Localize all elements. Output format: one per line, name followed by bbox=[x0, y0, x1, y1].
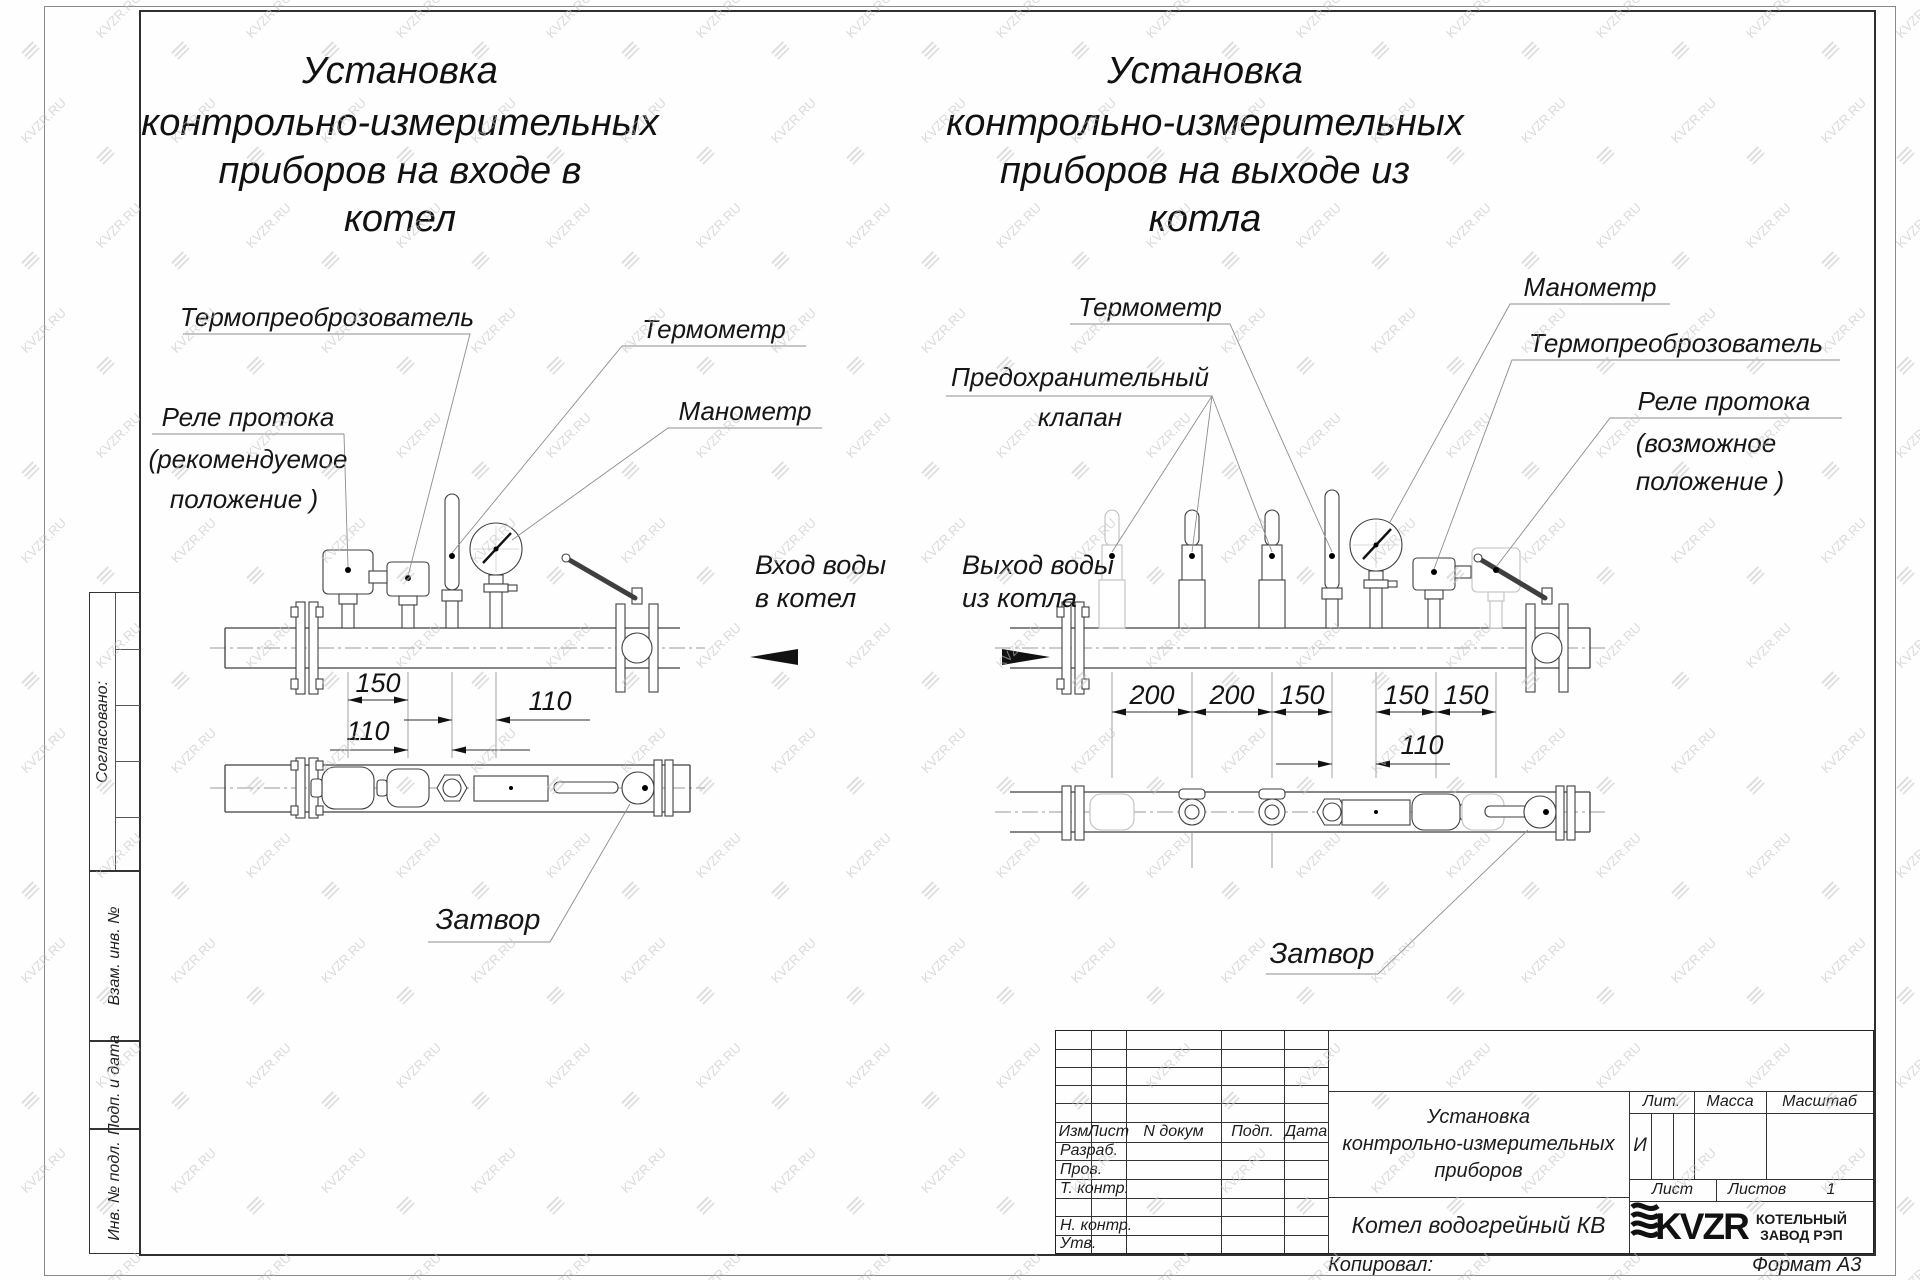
sidebar-agreed-label: Согласовано: bbox=[94, 681, 112, 783]
tb-logo-cell: KVZR КОТЕЛЬНЫЙ ЗАВОД РЭП bbox=[1629, 1201, 1873, 1253]
sidebar-podp-label: Подп. и дата bbox=[106, 1035, 124, 1135]
sidebar-agreed: Согласовано: bbox=[89, 592, 141, 872]
kvzr-logo-sub2: ЗАВОД РЭП bbox=[1756, 1227, 1847, 1243]
format-label: Формат А3 bbox=[1752, 1254, 1861, 1277]
label-water-outlet-line2: из котла bbox=[962, 583, 1077, 614]
tb-izm-header: Изм bbox=[1056, 1122, 1091, 1142]
right-flow-arrow bbox=[1002, 649, 1050, 665]
label-left-relay-line1: Реле протока bbox=[162, 402, 335, 433]
kvzr-logo-sub1: КОТЕЛЬНЫЙ bbox=[1756, 1211, 1847, 1227]
right-title-line4: котла bbox=[1149, 198, 1261, 241]
left-top-view bbox=[210, 758, 705, 818]
tb-doc-title-line3: приборов bbox=[1434, 1158, 1522, 1185]
label-right-thermometer: Термометр bbox=[1078, 292, 1222, 323]
copied-label: Копировал: bbox=[1328, 1254, 1433, 1277]
right-safety-valve-1 bbox=[1179, 510, 1205, 628]
label-left-relay-line2: (рекомендуемое bbox=[149, 444, 348, 475]
left-thermometer bbox=[442, 494, 462, 628]
dim-left-150: 150 bbox=[355, 668, 400, 698]
left-title-line3: приборов на входе в bbox=[218, 150, 581, 193]
right-top-safety-2 bbox=[1259, 789, 1285, 868]
sidebar-podp: Подп. и дата bbox=[89, 1040, 141, 1130]
dim-right-150a: 150 bbox=[1279, 680, 1324, 710]
label-left-valve: Затвор bbox=[436, 904, 541, 937]
tb-product: Котел водогрейный КВ bbox=[1328, 1197, 1629, 1253]
tb-nkontr: Н. контр. bbox=[1060, 1216, 1136, 1235]
kvzr-coil-icon bbox=[1629, 1201, 1661, 1239]
tb-scale-header: Масштаб bbox=[1766, 1091, 1873, 1113]
tb-lit-value: И bbox=[1629, 1113, 1651, 1179]
left-shutoff-valve bbox=[562, 554, 658, 692]
left-dimensions: 150 110 110 bbox=[330, 668, 590, 758]
tb-utv: Утв. bbox=[1060, 1235, 1126, 1253]
label-water-inlet-line2: в котел bbox=[755, 583, 856, 614]
drawing-sheet: 150 110 110 bbox=[0, 0, 1920, 1280]
tb-sheet-label: Лист bbox=[1629, 1179, 1716, 1201]
right-thermo-transducer bbox=[1413, 558, 1471, 628]
label-left-thermometer: Термометр bbox=[642, 314, 786, 345]
tb-razrab: Разраб. bbox=[1060, 1142, 1126, 1160]
dim-right-200a: 200 bbox=[1128, 680, 1174, 710]
tb-massa-header: Масса bbox=[1694, 1091, 1766, 1113]
right-dimensions: 200 200 150 150 150 110 bbox=[1112, 672, 1496, 778]
dim-right-150c: 150 bbox=[1443, 680, 1488, 710]
title-block: Изм Лист N докум Подп. Дата Разраб. Пров… bbox=[1055, 1030, 1874, 1254]
left-title-line2: контрольно-измерительных bbox=[141, 102, 658, 145]
tb-doc-title-line1: Установка bbox=[1427, 1104, 1530, 1131]
sidebar-inv: Инв. № подл. bbox=[89, 1128, 141, 1254]
tb-sheets-value: 1 bbox=[1816, 1179, 1846, 1201]
right-top-view bbox=[995, 786, 1605, 868]
right-top-safety-1 bbox=[1179, 789, 1205, 868]
label-right-manometer: Манометр bbox=[1524, 272, 1657, 303]
label-left-relay-line3: положение ) bbox=[170, 484, 318, 515]
sidebar-vzam-label: Взам. инв. № bbox=[106, 907, 124, 1006]
right-side-view bbox=[995, 490, 1605, 694]
tb-lit-header: Лит. bbox=[1629, 1091, 1694, 1113]
right-manometer bbox=[1350, 519, 1402, 628]
label-right-relay-line1: Реле протока bbox=[1638, 386, 1811, 417]
label-water-inlet-line1: Вход воды bbox=[755, 550, 886, 581]
left-side-view bbox=[210, 494, 798, 694]
label-right-relay-line2: (возможное bbox=[1636, 428, 1776, 459]
dim-right-150b: 150 bbox=[1383, 680, 1428, 710]
tb-doc-title-line2: контрольно-измерительных bbox=[1342, 1131, 1614, 1158]
label-right-transducer: Термопреоброзователь bbox=[1529, 328, 1823, 359]
sidebar-inv-label: Инв. № подл. bbox=[106, 1141, 124, 1240]
label-right-valve: Затвор bbox=[1270, 938, 1375, 971]
right-title-line3: приборов на выходе из bbox=[1000, 150, 1410, 193]
dim-right-200b: 200 bbox=[1208, 680, 1254, 710]
tb-data-header: Дата bbox=[1284, 1122, 1328, 1142]
left-title-line4: котел bbox=[344, 198, 456, 241]
tb-doc-title: Установка контрольно-измерительных прибо… bbox=[1328, 1091, 1629, 1197]
dim-right-110: 110 bbox=[1400, 730, 1443, 760]
tb-tkontr: Т. контр. bbox=[1060, 1179, 1136, 1198]
label-left-manometer: Манометр bbox=[679, 396, 812, 427]
tb-list-header: Лист bbox=[1091, 1122, 1126, 1142]
label-right-safety-line1: Предохранительный bbox=[951, 362, 1209, 393]
kvzr-logo-text: KVZR bbox=[1655, 1206, 1748, 1248]
label-left-transducer: Термопреоброзователь bbox=[180, 302, 474, 333]
label-right-safety-line2: клапан bbox=[1038, 402, 1122, 433]
tb-ndok-header: N докум bbox=[1126, 1122, 1221, 1142]
left-thermo-transducer bbox=[369, 562, 429, 628]
left-title-line1: Установка bbox=[302, 50, 498, 93]
left-flow-arrow bbox=[750, 649, 798, 665]
dim-left-110a: 110 bbox=[528, 686, 571, 716]
tb-podp-header: Подп. bbox=[1221, 1122, 1284, 1142]
label-water-outlet-line1: Выход воды bbox=[962, 550, 1114, 581]
dim-left-110b: 110 bbox=[346, 716, 389, 746]
right-title-line1: Установка bbox=[1107, 50, 1303, 93]
sidebar-vzam: Взам. инв. № bbox=[89, 870, 141, 1042]
right-title-line2: контрольно-измерительных bbox=[946, 102, 1463, 145]
tb-sheets-label: Листов bbox=[1728, 1179, 1808, 1201]
label-right-relay-line3: положение ) bbox=[1636, 466, 1784, 497]
tb-prov: Пров. bbox=[1060, 1160, 1126, 1179]
